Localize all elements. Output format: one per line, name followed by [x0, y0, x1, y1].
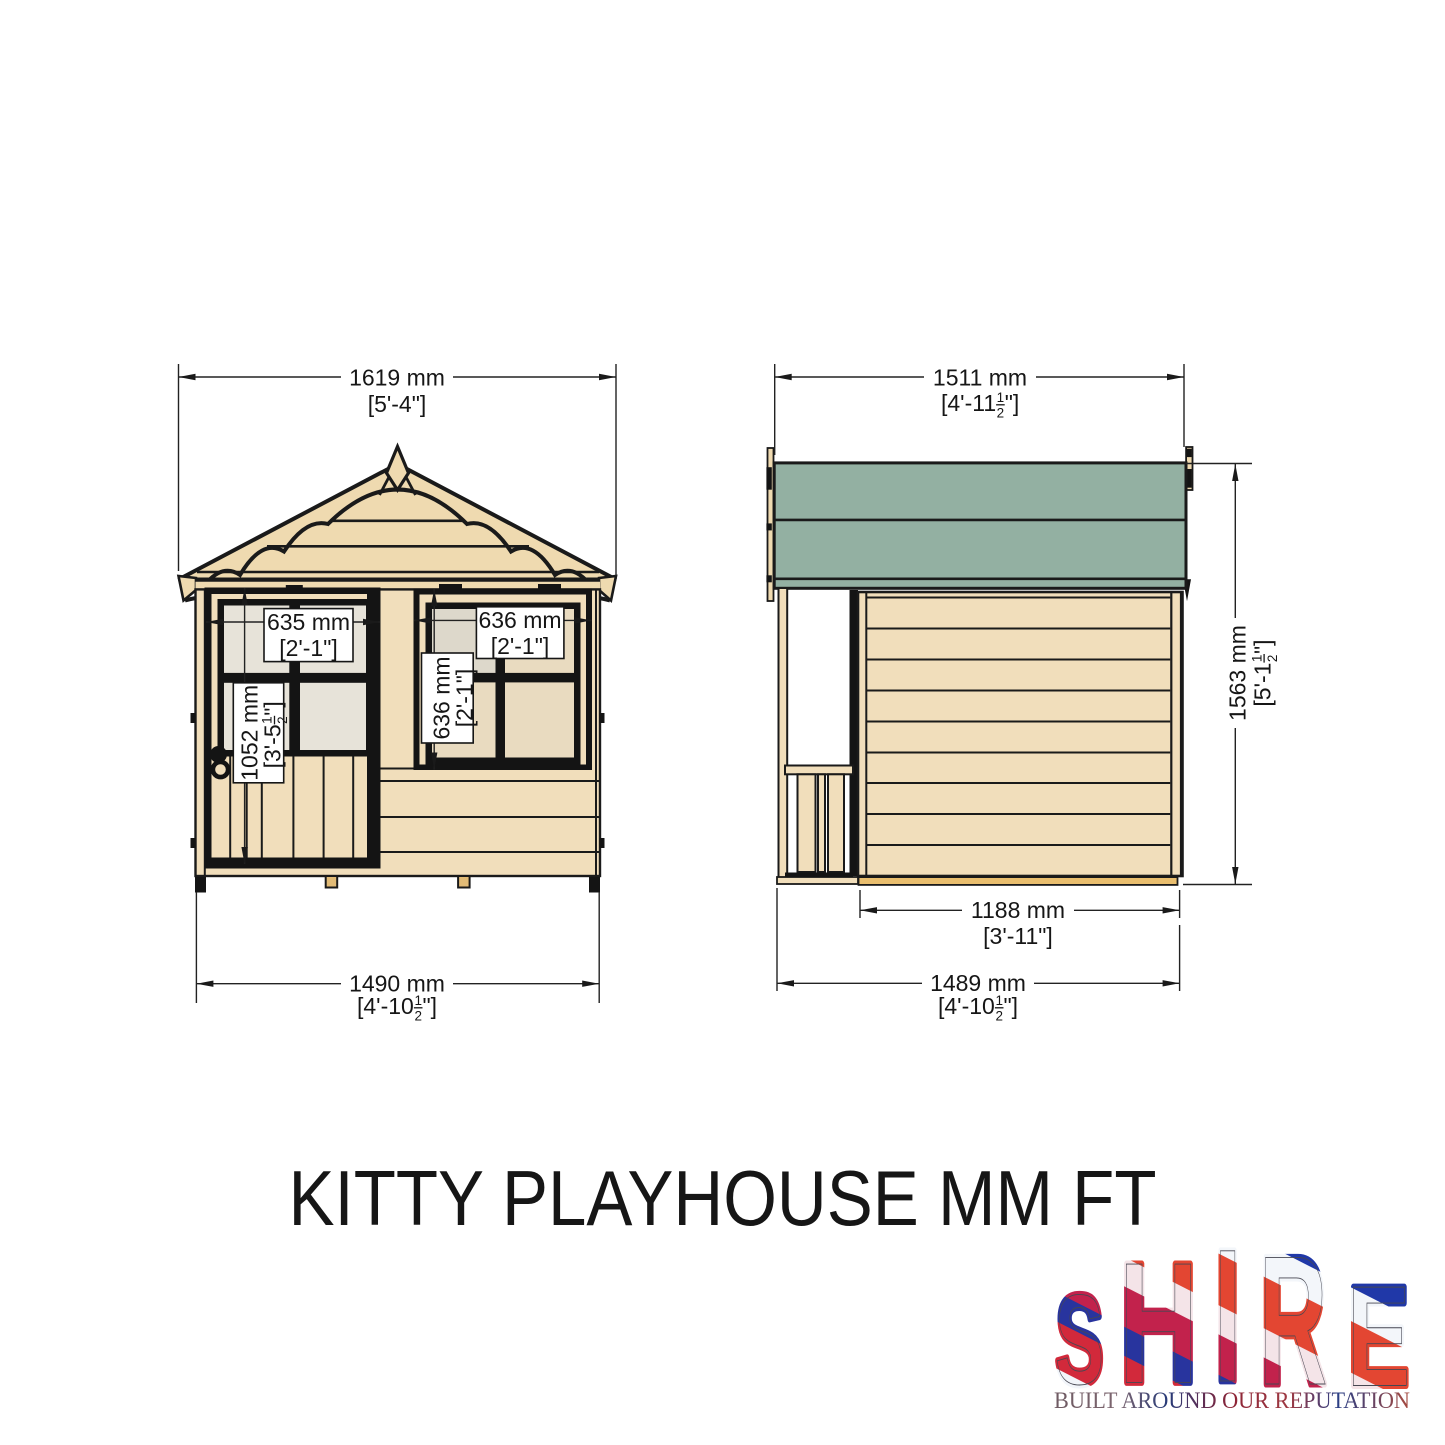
svg-text:[3'-5: [3'-5 — [260, 724, 286, 768]
svg-text:[5'-1: [5'-1 — [1249, 663, 1275, 707]
svg-text:1: 1 — [260, 716, 275, 724]
svg-text:[5'-4"]: [5'-4"] — [368, 391, 427, 417]
svg-text:1: 1 — [1249, 655, 1264, 663]
svg-text:[2'-1"]: [2'-1"] — [279, 635, 338, 661]
svg-text:[4'-10: [4'-10 — [938, 993, 995, 1019]
svg-text:636 mm: 636 mm — [478, 607, 561, 633]
svg-text:[2'-1"]: [2'-1"] — [491, 633, 550, 659]
svg-text:2: 2 — [995, 1009, 1003, 1024]
svg-text:[4'-10: [4'-10 — [357, 993, 414, 1019]
svg-text:BUILT AROUND OUR REPUTATION: BUILT AROUND OUR REPUTATION — [1054, 1388, 1410, 1414]
svg-text:635 mm: 635 mm — [267, 609, 350, 635]
svg-text:"]: "] — [1004, 993, 1019, 1019]
svg-text:1619 mm: 1619 mm — [349, 365, 445, 391]
svg-text:1188 mm: 1188 mm — [971, 897, 1065, 923]
svg-text:[2'-1"]: [2'-1"] — [451, 669, 477, 728]
svg-text:1511 mm: 1511 mm — [933, 365, 1027, 391]
svg-text:2: 2 — [1265, 655, 1280, 663]
svg-text:1563 mm: 1563 mm — [1224, 625, 1250, 721]
svg-text:[4'-11: [4'-11 — [941, 390, 996, 416]
svg-text:KITTY PLAYHOUSE MM FT: KITTY PLAYHOUSE MM FT — [289, 1154, 1157, 1242]
svg-text:2: 2 — [997, 406, 1005, 421]
svg-text:"]: "] — [423, 993, 438, 1019]
svg-text:1: 1 — [997, 390, 1005, 405]
svg-text:"]: "] — [1249, 639, 1275, 654]
svg-text:"]: "] — [260, 701, 286, 716]
svg-text:"]: "] — [1005, 390, 1020, 416]
svg-text:2: 2 — [275, 716, 290, 724]
svg-text:[3'-11"]: [3'-11"] — [983, 923, 1053, 949]
svg-text:1: 1 — [414, 993, 422, 1008]
svg-text:2: 2 — [414, 1009, 422, 1024]
svg-text:1: 1 — [995, 993, 1003, 1008]
